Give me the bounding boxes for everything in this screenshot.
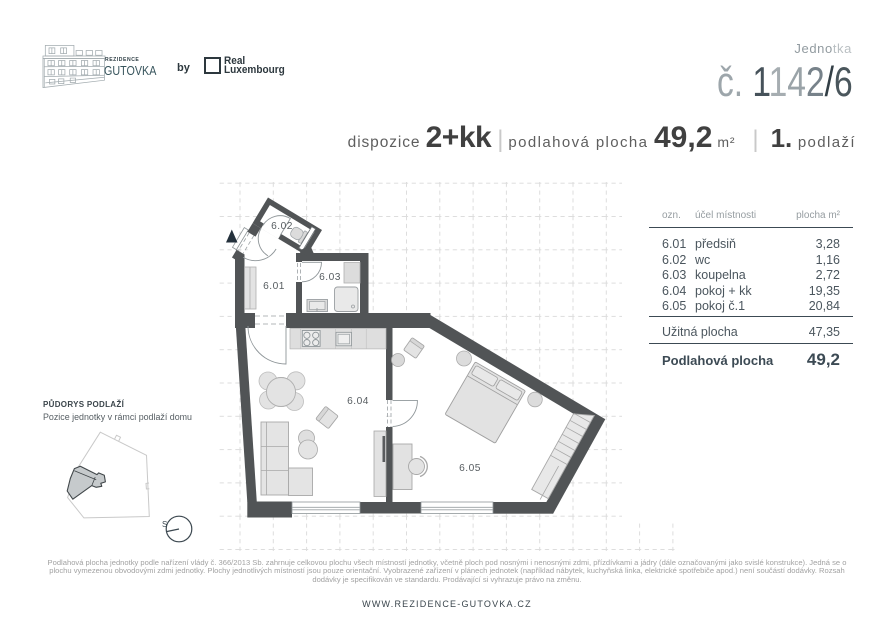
svg-text:6.05: 6.05 — [459, 463, 481, 474]
svg-text:6.01: 6.01 — [263, 281, 285, 292]
svg-text:S: S — [162, 520, 167, 529]
svg-text:6.04: 6.04 — [347, 396, 369, 407]
svg-text:6.02: 6.02 — [271, 221, 293, 232]
svg-text:6.03: 6.03 — [319, 272, 341, 283]
